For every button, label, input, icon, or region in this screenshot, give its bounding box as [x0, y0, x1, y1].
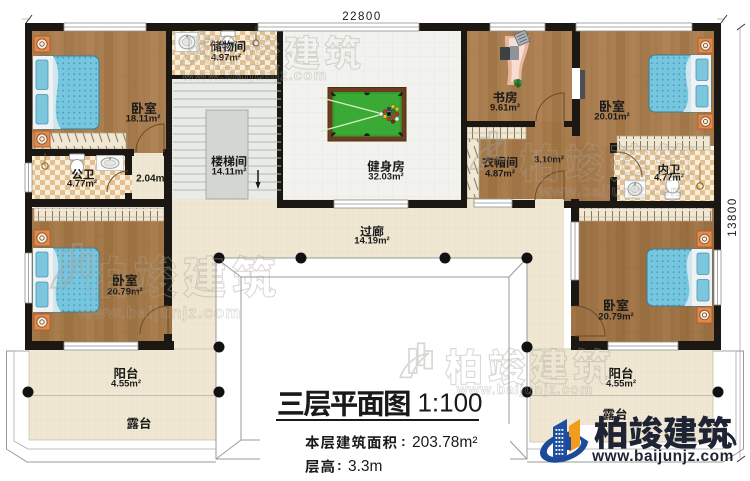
- svg-text:1:100: 1:100: [417, 388, 482, 418]
- svg-text:32.03m²: 32.03m²: [368, 171, 403, 182]
- svg-text:22800: 22800: [342, 11, 381, 23]
- svg-text:4.77m²: 4.77m²: [67, 178, 97, 189]
- svg-text:www.baijunjz.com: www.baijunjz.com: [591, 448, 734, 465]
- svg-text:3.3m: 3.3m: [348, 458, 382, 475]
- svg-text:www.baijunjz.com: www.baijunjz.com: [538, 183, 684, 200]
- svg-text:4.55m²: 4.55m²: [111, 378, 141, 389]
- svg-text:www.baijunjz.com: www.baijunjz.com: [181, 67, 327, 84]
- svg-text:14.19m²: 14.19m²: [354, 235, 389, 246]
- svg-text:4.87m²: 4.87m²: [485, 168, 515, 179]
- svg-text::: :: [401, 433, 406, 449]
- svg-text:13800: 13800: [727, 197, 739, 236]
- svg-text:2.04m²: 2.04m²: [136, 173, 168, 184]
- svg-text::: :: [337, 457, 342, 473]
- svg-text:203.78m²: 203.78m²: [412, 434, 477, 451]
- svg-text:20.01m²: 20.01m²: [594, 111, 629, 122]
- svg-text:18.11m²: 18.11m²: [126, 113, 161, 124]
- svg-text:9.61m²: 9.61m²: [490, 102, 520, 113]
- svg-text:20.79m²: 20.79m²: [598, 311, 633, 322]
- svg-text:www.baijunjz.com: www.baijunjz.com: [78, 303, 242, 322]
- svg-text:14.11m²: 14.11m²: [212, 166, 247, 177]
